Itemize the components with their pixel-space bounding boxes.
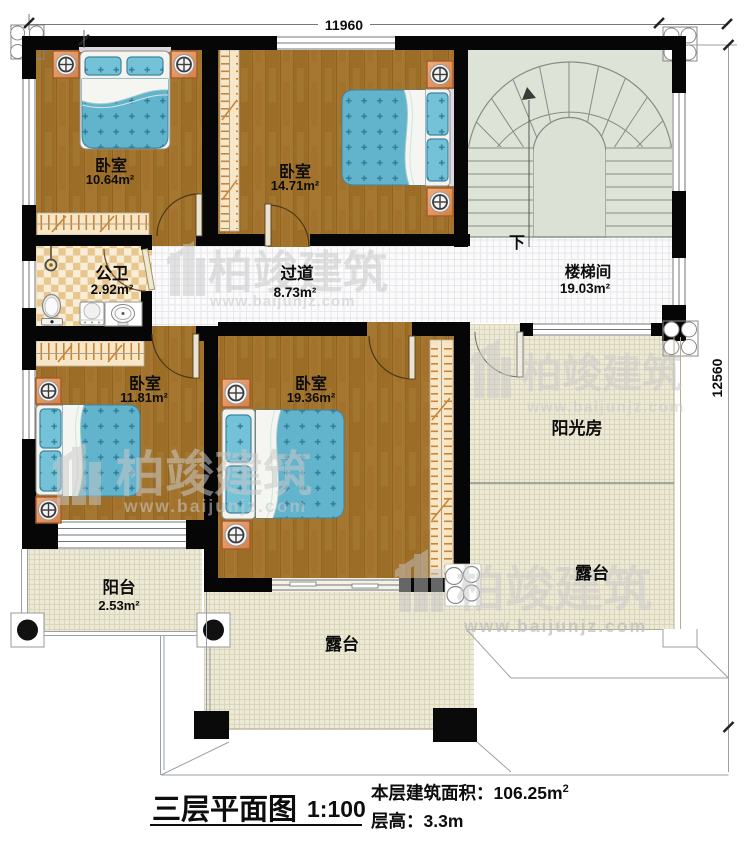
svg-text:露台: 露台 xyxy=(325,634,359,654)
svg-text:11.81m²: 11.81m² xyxy=(120,390,168,405)
svg-text:11960: 11960 xyxy=(325,17,363,33)
svg-text:2.53m²: 2.53m² xyxy=(98,598,140,613)
svg-text:过道: 过道 xyxy=(281,263,315,283)
svg-text:露台: 露台 xyxy=(575,563,609,583)
svg-text:1:100: 1:100 xyxy=(307,796,366,822)
svg-text:阳光房: 阳光房 xyxy=(552,418,603,438)
svg-text:柏竣建筑: 柏竣建筑 xyxy=(456,563,652,617)
svg-text:柏竣建筑: 柏竣建筑 xyxy=(116,448,312,502)
svg-text:www.baijunjz.com: www.baijunjz.com xyxy=(463,616,647,636)
svg-text:12560: 12560 xyxy=(709,358,725,397)
svg-text:公卫: 公卫 xyxy=(96,264,129,283)
svg-text:楼梯间: 楼梯间 xyxy=(565,262,612,281)
svg-text:三层平面图: 三层平面图 xyxy=(152,794,297,826)
svg-text:柏竣建筑: 柏竣建筑 xyxy=(522,352,682,396)
svg-text:www.baijunjz.com: www.baijunjz.com xyxy=(123,496,307,516)
svg-text:本层建筑面积：106.25m2: 本层建筑面积：106.25m2 xyxy=(371,783,569,803)
svg-text:层高：3.3m: 层高：3.3m xyxy=(371,811,463,831)
svg-text:2.92m²: 2.92m² xyxy=(91,282,134,297)
svg-text:14.71m²: 14.71m² xyxy=(271,178,320,193)
svg-text:19.03m²: 19.03m² xyxy=(560,281,611,296)
svg-text:10.64m²: 10.64m² xyxy=(86,172,135,187)
svg-text:19.36m²: 19.36m² xyxy=(287,390,336,405)
svg-text:www.baijunjz.com: www.baijunjz.com xyxy=(526,399,685,416)
svg-text:下: 下 xyxy=(509,235,525,252)
svg-text:阳台: 阳台 xyxy=(103,577,136,597)
svg-text:8.73m²: 8.73m² xyxy=(274,285,317,300)
